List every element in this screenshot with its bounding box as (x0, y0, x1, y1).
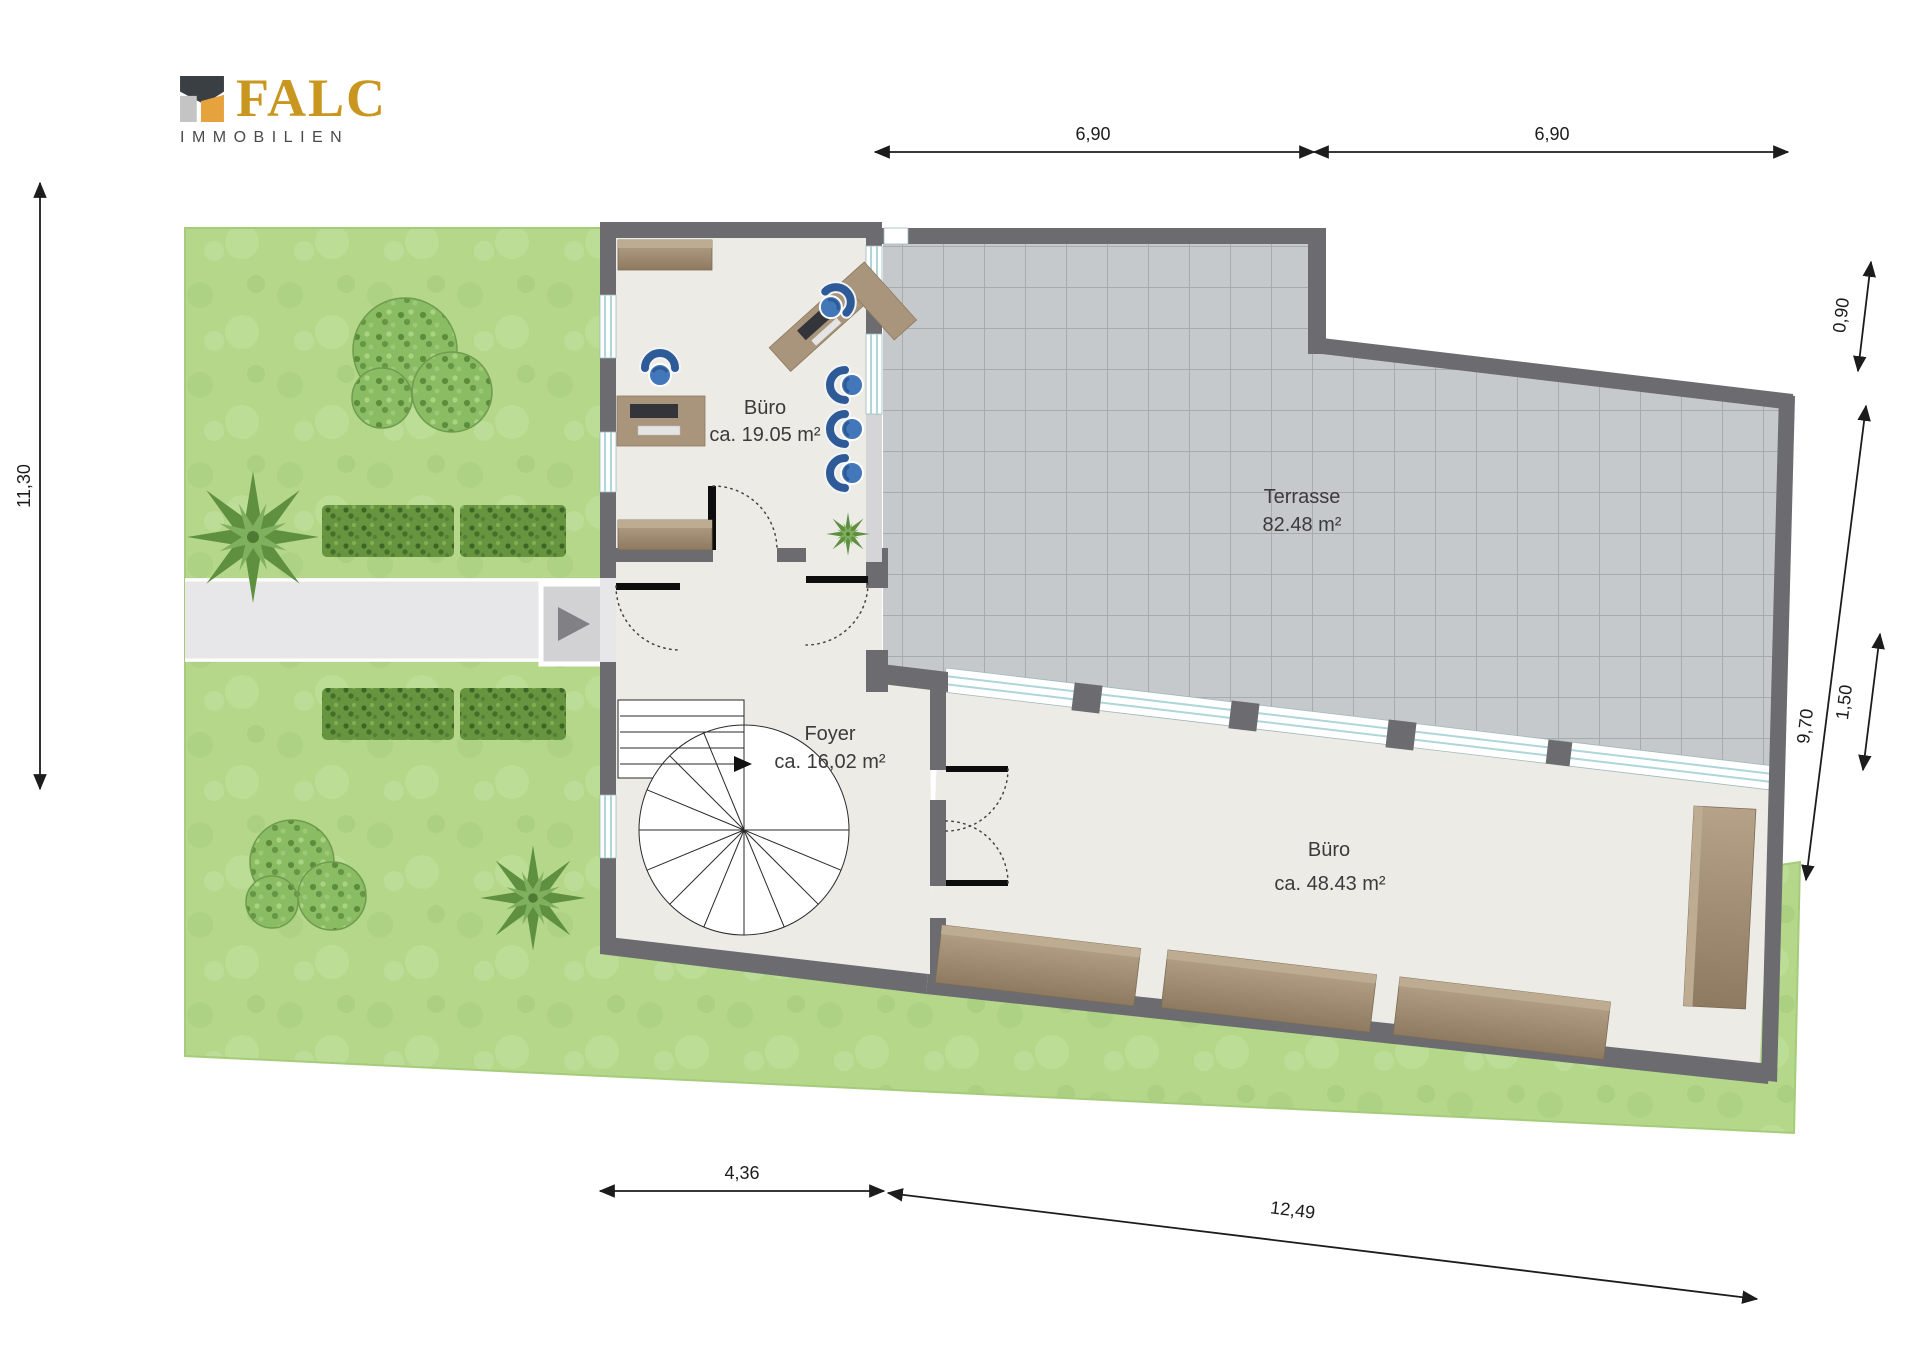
logo-subtitle-text: IMMOBILIEN (180, 129, 440, 147)
falc-logo-house-icon (180, 76, 224, 122)
svg-text:0,90: 0,90 (1829, 297, 1853, 334)
room-area-terrasse: 82.48 m² (1263, 514, 1342, 536)
potted-plant (826, 512, 870, 556)
palm-plant (480, 845, 586, 951)
dimension-bottom-left: 4,36 (600, 1163, 884, 1191)
svg-text:1,50: 1,50 (1832, 684, 1856, 721)
room-label-foyer: Foyer (804, 723, 855, 745)
wall-office-large-left (930, 800, 946, 886)
window (600, 432, 616, 492)
window (866, 334, 882, 414)
logo-brand-text: FALC (236, 76, 387, 120)
dimension-left: 11,30 (14, 183, 40, 789)
dimension-right-main: 9,70 (1793, 406, 1866, 880)
hedge (322, 688, 454, 740)
wall-interior (777, 548, 806, 562)
window (600, 795, 616, 858)
dimension-bottom-right: 12,49 (888, 1193, 1757, 1299)
window (884, 228, 908, 244)
wall-top (600, 222, 882, 238)
sideboard (618, 520, 712, 550)
hedge (460, 505, 566, 557)
wall-terrace-top (882, 228, 1322, 244)
window (600, 295, 616, 358)
floorplan-canvas: Büro ca. 19.05 m² Terrasse 82.48 m² Foye… (0, 0, 1920, 1357)
sideboard (1684, 806, 1756, 1009)
svg-text:4,36: 4,36 (724, 1163, 759, 1183)
room-label-terrasse: Terrasse (1264, 486, 1341, 508)
wall-office-large-left (930, 688, 946, 770)
entrance-path (185, 578, 605, 664)
desk (617, 396, 705, 446)
dimension-top-left: 6,90 (875, 124, 1314, 152)
sideboard (618, 240, 712, 270)
svg-text:9,70: 9,70 (1793, 708, 1817, 745)
room-label-buero-klein: Büro (744, 397, 786, 419)
dimension-top-right: 6,90 (1314, 124, 1788, 152)
window-sill (866, 414, 882, 562)
svg-text:6,90: 6,90 (1534, 124, 1569, 144)
room-area-buero-klein: ca. 19.05 m² (709, 424, 821, 446)
svg-text:12,49: 12,49 (1269, 1197, 1316, 1222)
entrance-opening (600, 578, 616, 662)
falc-logo: FALC IMMOBILIEN (180, 76, 440, 147)
room-area-buero-gross: ca. 48.43 m² (1274, 873, 1386, 895)
svg-text:6,90: 6,90 (1075, 124, 1110, 144)
svg-text:11,30: 11,30 (14, 464, 34, 508)
palm-plant (187, 471, 319, 603)
hedge (460, 688, 566, 740)
wall-terrace-step (1308, 228, 1326, 354)
dimension-right-step: 0,90 (1829, 262, 1871, 371)
dimension-right-inner: 1,50 (1832, 634, 1880, 770)
hedge (322, 505, 454, 557)
room-label-buero-gross: Büro (1308, 839, 1350, 861)
floorplan-drawing: Büro ca. 19.05 m² Terrasse 82.48 m² Foye… (0, 0, 1920, 1357)
room-area-foyer: ca. 16,02 m² (774, 751, 886, 773)
